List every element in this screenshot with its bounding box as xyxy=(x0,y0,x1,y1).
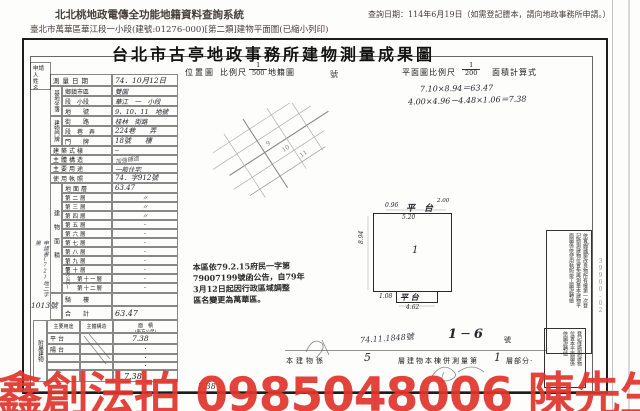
plan-dim-top-left: 0.96 xyxy=(385,202,398,209)
applicant-label-1: 申請人 xyxy=(33,66,48,79)
area-calc-label: 面積計算式 xyxy=(492,67,537,78)
scale-label: 比例尺 xyxy=(220,67,247,78)
district-rename-stamp: 本區依79.2.15府民一字第 79007199號函公告，自79年 3月12日起… xyxy=(193,260,324,306)
info-row-value: ─ xyxy=(112,146,178,155)
site-row-value: 雙園 xyxy=(112,86,178,96)
annex-header-use: 主要用途 xyxy=(47,320,80,333)
page-title: 台北市古亭地政事務所建物測量成果圖 xyxy=(112,41,435,65)
floor-row-value: · xyxy=(112,238,178,247)
location-map-label: 位置圖 xyxy=(185,67,215,78)
plan-scale-denominator: 200 xyxy=(462,69,480,77)
plan-unit-number: 1 xyxy=(412,245,418,256)
plan-scale-fraction: 1 200 xyxy=(462,62,480,76)
location-map-sketch: 9 10 11 xyxy=(213,103,348,208)
door-row-value: 18號 樓 xyxy=(112,136,178,146)
page-edge-line xyxy=(612,0,613,411)
floor-row-value: · xyxy=(112,256,178,265)
floor-row-value: 63.47 xyxy=(112,183,178,193)
info-row-value: 一般住宅 xyxy=(112,164,178,173)
info-row-value: 74．字912號 xyxy=(112,173,178,183)
microfilm-number: 39900-02 xyxy=(597,258,604,348)
floors-total-label: 合 計 xyxy=(62,306,112,320)
door-row-label: 街 路 xyxy=(62,116,112,126)
floor-row-value: · xyxy=(112,265,178,274)
floor-row-label: 地面層 xyxy=(62,183,112,193)
site-row-value: 華江 一 小段 xyxy=(112,96,178,106)
info-row-label: 建築式樣 xyxy=(50,146,112,155)
survey-date-label: 測量日期 xyxy=(50,74,112,86)
svg-text:10: 10 xyxy=(281,144,291,154)
plan-dim-left: 8.94 xyxy=(358,231,365,244)
floor-row-label: 第七層 xyxy=(62,238,112,247)
realtor-watermark: 鑫創法拍 0985048006 陳先生 xyxy=(0,356,640,411)
floor-row-label: 第二層 xyxy=(62,193,112,202)
scanned-survey-page: 北北桃地政電傳全功能地籍資料查詢系統 查詢日期：114年6月19日（如需登記謄本… xyxy=(0,0,640,411)
annex-row-area: · xyxy=(113,344,178,354)
floor-row-label: 第三層 xyxy=(62,202,112,211)
floor-row-value: 〃 xyxy=(112,193,178,202)
door-row-value: 224巷 弄 xyxy=(112,126,178,136)
area-calc-line-1: 7.10×8.94＝63.47 xyxy=(420,82,493,94)
svg-text:9: 9 xyxy=(265,140,272,148)
site-row-label: 地 號 xyxy=(62,106,112,116)
query-date: 查詢日期：114年6月19日（如需登記謄本，請向地政事務所申請。） xyxy=(368,9,611,20)
survey-date-value: 74．10月12日 xyxy=(112,74,178,86)
margin-note: 申請書(72)地二字第 xyxy=(33,240,49,300)
annex-row-struct xyxy=(80,333,113,344)
applicant-cell: 申請人 姓 名 xyxy=(30,62,51,90)
location-scale-fraction: 1 500 xyxy=(249,62,267,76)
annex-header-struct: 主體構造 xyxy=(80,320,113,333)
bottom-row-divider xyxy=(285,350,547,351)
page-edge-line xyxy=(628,0,630,411)
annex-header-area: 面 積 (平方公尺) xyxy=(113,320,178,333)
floors-total-value: 63.47 xyxy=(112,306,178,320)
site-row-label: 段 小段 xyxy=(62,96,112,106)
plan-label-top-platform: 平 台 xyxy=(406,201,433,214)
site-group-label: 基地坐落 xyxy=(50,86,62,116)
info-row-label: 主體構造 xyxy=(50,155,112,164)
annex-row-area: 7.38 xyxy=(113,333,178,344)
site-row-label: 鄉鎮市區 xyxy=(62,86,112,96)
floor-row-value: · xyxy=(112,229,178,238)
floor-row-value: · xyxy=(112,247,178,256)
qilou-value xyxy=(112,293,178,306)
plan-label-bottom-platform: 平 台 xyxy=(400,292,419,303)
plan-dim-bottom: 4.62 xyxy=(406,304,419,311)
floor-row-value: · xyxy=(112,220,178,229)
floor-row-label: 第八層 xyxy=(62,247,112,256)
floor-row-label: 第四層 xyxy=(62,211,112,220)
document-subtitle: 臺北市萬華區華江段一小段(建號:01276-000)[第二類]建物平面圖(已縮小… xyxy=(30,23,328,35)
info-row-value: 加強磚造 xyxy=(112,155,178,164)
paren-mark: ( xyxy=(585,242,590,257)
annex-row-use: 平台 xyxy=(47,333,80,344)
floor-row-label: 第六層 xyxy=(62,229,112,238)
cadastral-map-label: 地籍圖 xyxy=(268,67,295,78)
margin-note-number: 1013號 xyxy=(31,300,58,311)
building-range-suffix: 號 xyxy=(504,335,511,345)
plan-dim-bottom-left: 1.08 xyxy=(379,293,392,300)
applicant-label-2: 姓 名 xyxy=(33,79,48,90)
floor-row-value: · xyxy=(112,283,178,293)
annex-row-use: 陽台 xyxy=(47,344,80,354)
building-range-value: 1 ─ 6 xyxy=(448,327,483,342)
door-row-label: 門 牌 xyxy=(62,136,112,146)
info-row-label: 使用執照 xyxy=(50,173,112,183)
door-row-label: 段 巷 弄 xyxy=(62,126,112,136)
floor-row-label: 第五層 xyxy=(62,220,112,229)
info-row-label: 主要用途 xyxy=(50,164,112,173)
svg-text:11: 11 xyxy=(299,149,309,159)
door-group-label: 建物門牌 xyxy=(50,116,62,146)
system-title: 北北桃地政電傳全功能地籍資料查詢系統 xyxy=(55,7,244,22)
floor-row-value: 〃 xyxy=(112,211,178,220)
floor-row-value: 〃 xyxy=(112,202,178,211)
qilou-label: 騎 樓 xyxy=(62,293,112,306)
plan-dim-top-inner: 5.20 xyxy=(402,214,415,221)
floors-group-label: 建物面積 xyxy=(50,183,62,293)
building-number-label: 號 xyxy=(330,69,338,80)
plan-scale-label: 平面圖比例尺 xyxy=(402,67,456,78)
floor-row-value: · xyxy=(112,274,178,283)
annex-row-struct xyxy=(80,344,113,354)
plan-dim-top-small: 2.00 xyxy=(437,198,449,204)
door-row-value: 桂林 街路 xyxy=(112,116,178,126)
scale-denominator: 500 xyxy=(249,69,267,77)
site-row-value: 9、10、11 地號 xyxy=(112,106,178,116)
